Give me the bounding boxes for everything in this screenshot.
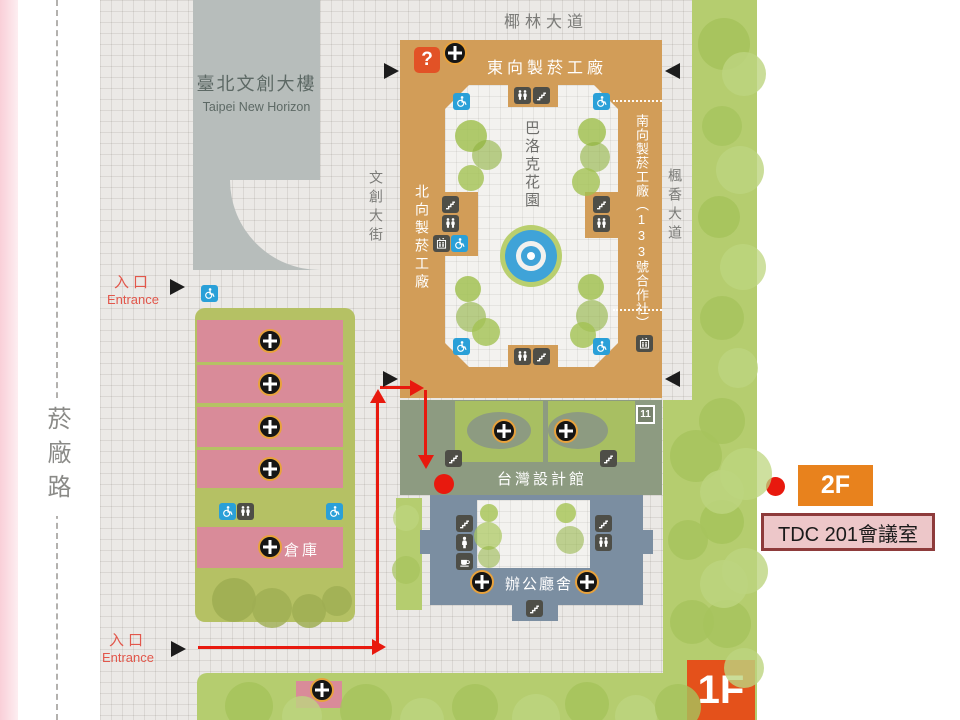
- stairs-icon: [533, 87, 550, 104]
- stairs-icon: [533, 348, 550, 365]
- stairs-icon: [456, 515, 473, 532]
- tree: [292, 594, 326, 628]
- wheelchair-icon-glyph: [203, 287, 216, 300]
- tree: [556, 526, 584, 554]
- tree: [480, 504, 498, 522]
- street-label-east: 楓香大道: [665, 168, 685, 244]
- tree: [670, 600, 714, 644]
- plus-marker-icon: [258, 415, 282, 439]
- elevator-icon-glyph: [435, 237, 448, 250]
- tree: [565, 682, 609, 720]
- wheelchair-icon-glyph: [453, 237, 466, 250]
- plus-marker-icon: [575, 570, 599, 594]
- wheelchair-icon-glyph: [455, 340, 468, 353]
- restroom-icon-glyph: [239, 505, 252, 518]
- tree: [668, 520, 708, 560]
- tree: [698, 196, 740, 238]
- stairs-icon-glyph: [535, 350, 548, 363]
- person-icon-glyph: [458, 536, 471, 549]
- person-icon: [456, 534, 473, 551]
- stairs-icon: [526, 600, 543, 617]
- tree: [702, 106, 742, 146]
- tree: [393, 505, 419, 531]
- wheelchair-icon: [593, 338, 610, 355]
- new-horizon-label: 臺北文創大樓 Taipei New Horizon: [193, 70, 320, 114]
- street-arrow-icon: [665, 63, 680, 79]
- office-wing: [420, 530, 430, 554]
- street-arrow-icon: [171, 641, 186, 657]
- tree: [252, 588, 292, 628]
- fountain-center: [527, 252, 535, 260]
- route-arrow-right: [372, 639, 386, 655]
- entrance-label-west: 入口 Entrance: [95, 271, 171, 307]
- tree: [720, 244, 766, 290]
- destination-dot: [434, 474, 454, 494]
- site-map-slide: 菸廠路 倉庫 臺北文創大樓 Taipei New Horizon 東向製菸工廠 …: [0, 0, 960, 720]
- tree: [322, 586, 352, 616]
- site-number-badge: 11: [636, 405, 655, 424]
- tree: [718, 348, 758, 388]
- tree: [392, 556, 420, 584]
- factory-east-label: 東向製菸工廠: [487, 54, 607, 78]
- entrance-label-en: Entrance: [90, 650, 166, 665]
- stairs-icon-glyph: [535, 89, 548, 102]
- wheelchair-icon: [326, 503, 343, 520]
- question-icon: ?: [414, 47, 440, 73]
- tree: [212, 578, 256, 622]
- coffee-icon-glyph: [458, 555, 471, 568]
- plus-marker-icon: [258, 457, 282, 481]
- plus-marker-icon: [258, 372, 282, 396]
- street-arrow-icon: [665, 371, 680, 387]
- tree: [556, 503, 576, 523]
- plus-marker-icon: [443, 41, 467, 65]
- wheelchair-icon-glyph: [221, 505, 234, 518]
- wheelchair-icon-glyph: [595, 340, 608, 353]
- factory-north-label: 北向製菸工廠: [412, 184, 432, 292]
- factory-south-label: 南向製菸工廠（133號合作社）: [632, 114, 651, 330]
- tree: [700, 296, 744, 340]
- tree: [478, 546, 500, 568]
- tree: [700, 470, 744, 514]
- wheelchair-icon-glyph: [595, 95, 608, 108]
- baroque-garden-label: 巴洛克花園: [521, 120, 542, 210]
- route-arrow-down: [418, 455, 434, 469]
- stairs-icon: [595, 515, 612, 532]
- road-dashed-line: [56, 0, 58, 720]
- route-line-south: [198, 646, 372, 649]
- stairs-icon-glyph: [444, 198, 457, 211]
- restroom-icon-glyph: [444, 217, 457, 230]
- route-arrow-right: [410, 380, 424, 396]
- warehouse-label: 倉庫: [284, 539, 320, 560]
- restroom-icon-glyph: [516, 350, 529, 363]
- entrance-label-en: Entrance: [95, 292, 171, 307]
- tree: [458, 165, 484, 191]
- restroom-icon: [237, 503, 254, 520]
- street-label-center: 文創大街: [366, 170, 386, 246]
- wheelchair-icon: [201, 285, 218, 302]
- floor-badge-2f: 2F: [798, 465, 873, 506]
- stairs-icon-glyph: [528, 602, 541, 615]
- stairs-icon-glyph: [458, 517, 471, 530]
- street-arrow-icon: [170, 279, 185, 295]
- restroom-icon-glyph: [597, 536, 610, 549]
- stairs-icon-glyph: [447, 452, 460, 465]
- stairs-icon-glyph: [597, 517, 610, 530]
- tree: [578, 274, 604, 300]
- entrance-label-zh: 入口: [90, 629, 166, 650]
- restroom-icon: [514, 87, 531, 104]
- road-label-north: 椰林大道: [504, 8, 588, 32]
- tree: [455, 276, 481, 302]
- route-line-up: [376, 402, 379, 648]
- wheelchair-icon: [453, 93, 470, 110]
- restroom-icon: [595, 534, 612, 551]
- tree: [722, 52, 766, 96]
- route-line-down: [424, 390, 427, 456]
- tree: [572, 168, 600, 196]
- restroom-icon: [442, 215, 459, 232]
- new-horizon-subtitle: Taipei New Horizon: [193, 100, 320, 114]
- section-divider-dotted: [613, 100, 662, 102]
- tree: [724, 648, 764, 688]
- wheelchair-icon-glyph: [455, 95, 468, 108]
- street-arrow-icon: [383, 371, 398, 387]
- plus-marker-icon: [492, 419, 516, 443]
- office-wing: [643, 530, 653, 554]
- wheelchair-icon: [451, 235, 468, 252]
- stairs-icon: [442, 196, 459, 213]
- plus-marker-icon: [258, 329, 282, 353]
- route-arrow-up: [370, 389, 386, 403]
- road-label-west: 菸廠路: [36, 398, 77, 516]
- restroom-icon: [514, 348, 531, 365]
- tree: [700, 560, 748, 608]
- plus-marker-icon: [470, 570, 494, 594]
- tree: [472, 318, 500, 346]
- restroom-icon-glyph: [595, 217, 608, 230]
- entrance-label-south: 入口 Entrance: [90, 629, 166, 665]
- fountain: [500, 225, 562, 287]
- stairs-icon: [600, 450, 617, 467]
- elevator-icon: [636, 335, 653, 352]
- left-accent-strip: [0, 0, 18, 720]
- design-museum-label: 台灣設計館: [497, 468, 587, 489]
- restroom-icon: [593, 215, 610, 232]
- elevator-icon: [433, 235, 450, 252]
- street-arrow-icon: [384, 63, 399, 79]
- stairs-icon: [445, 450, 462, 467]
- new-horizon-title: 臺北文創大樓: [193, 70, 320, 96]
- coffee-icon: [456, 553, 473, 570]
- plus-marker-icon: [554, 419, 578, 443]
- tree: [716, 146, 764, 194]
- plus-marker-icon: [258, 535, 282, 559]
- stairs-icon: [593, 196, 610, 213]
- stairs-icon-glyph: [602, 452, 615, 465]
- wheelchair-icon: [219, 503, 236, 520]
- wheelchair-icon: [593, 93, 610, 110]
- plus-marker-icon: [310, 678, 334, 702]
- wheelchair-icon: [453, 338, 470, 355]
- entrance-label-zh: 入口: [95, 271, 171, 292]
- wheelchair-icon-glyph: [328, 505, 341, 518]
- office-label: 辦公廳舍: [505, 573, 573, 594]
- restroom-icon-glyph: [516, 89, 529, 102]
- stairs-icon-glyph: [595, 198, 608, 211]
- room-callout: TDC 201會議室: [761, 513, 935, 551]
- elevator-icon-glyph: [638, 337, 651, 350]
